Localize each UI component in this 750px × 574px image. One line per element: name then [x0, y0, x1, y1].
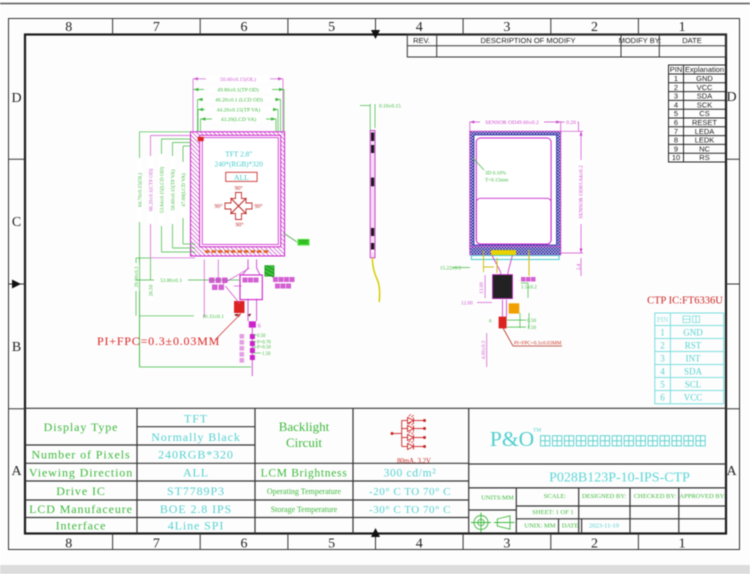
svg-text:DESCRIPTION OF MODIFY: DESCRIPTION OF MODIFY	[480, 36, 575, 45]
svg-text:4: 4	[674, 100, 678, 109]
svg-text:7: 7	[153, 20, 160, 35]
svg-text:P028B123P-10-IPS-CTP: P028B123P-10-IPS-CTP	[549, 471, 690, 486]
svg-text:PI+FPC=0.3±0.03MM: PI+FPC=0.3±0.03MM	[97, 334, 220, 348]
svg-text:5: 5	[674, 109, 678, 118]
svg-text:INT: INT	[686, 354, 701, 364]
svg-text:6: 6	[489, 319, 492, 325]
svg-text:Drive IC: Drive IC	[56, 484, 106, 498]
svg-text:8: 8	[65, 537, 72, 552]
svg-text:DATE: DATE	[682, 36, 701, 45]
svg-text:REV.: REV.	[413, 36, 430, 45]
svg-text:2: 2	[660, 341, 665, 351]
svg-text:3D 0.10%: 3D 0.10%	[485, 171, 507, 177]
svg-text:5: 5	[660, 380, 665, 390]
svg-text:MODIFY BY:: MODIFY BY:	[619, 36, 662, 45]
svg-text:64.70±0.15(OL): 64.70±0.15(OL)	[136, 173, 143, 207]
svg-text:Circuit: Circuit	[286, 435, 322, 450]
svg-text:PI+FPC=0.3±0.03MM: PI+FPC=0.3±0.03MM	[514, 340, 562, 346]
svg-text:LCM Brightness: LCM Brightness	[261, 468, 348, 480]
svg-text:GND: GND	[696, 74, 713, 83]
svg-text:SCALE:: SCALE:	[544, 493, 567, 500]
svg-text:43.20(LCD VA): 43.20(LCD VA)	[221, 116, 257, 123]
svg-text:4: 4	[416, 20, 423, 35]
svg-text:VCC: VCC	[684, 393, 703, 403]
svg-text:PIN: PIN	[657, 316, 668, 324]
svg-text:APPROVED BY:: APPROVED BY:	[679, 493, 725, 500]
svg-text:49.80±0.1(TP OD): 49.80±0.1(TP OD)	[217, 87, 259, 94]
svg-text:Backlight: Backlight	[279, 419, 330, 434]
svg-text:2.4: 2.4	[577, 263, 582, 270]
svg-text:44.20±0.15(TP VA): 44.20±0.15(TP VA)	[217, 107, 261, 114]
svg-text:4: 4	[416, 537, 423, 552]
svg-text:GND: GND	[683, 328, 703, 338]
svg-text:80mA, 3.2V: 80mA, 3.2V	[397, 458, 431, 465]
svg-text:A: A	[726, 464, 737, 479]
svg-text:D: D	[726, 90, 736, 105]
svg-text:ALL: ALL	[183, 466, 209, 480]
svg-text:6: 6	[660, 393, 665, 403]
svg-text:Interface: Interface	[56, 519, 107, 533]
svg-text:PIN: PIN	[670, 65, 683, 74]
svg-text:4: 4	[660, 367, 665, 377]
svg-text:DESIGNED BY:: DESIGNED BY:	[582, 493, 627, 500]
svg-text:4.00±0.3: 4.00±0.3	[481, 340, 487, 359]
svg-text:TFT 2.8": TFT 2.8"	[225, 150, 252, 159]
svg-text:8: 8	[65, 20, 72, 35]
svg-text:CS: CS	[699, 109, 709, 118]
svg-text:47.60(LCD VA): 47.60(LCD VA)	[180, 173, 187, 207]
svg-text:LEDK: LEDK	[695, 136, 715, 145]
svg-text:2: 2	[674, 83, 678, 92]
svg-text:RST: RST	[685, 341, 702, 351]
svg-text:P=0.50: P=0.50	[257, 346, 271, 351]
svg-text:240RGB*320: 240RGB*320	[158, 448, 234, 462]
svg-text:68.20±0.1(CTP OD): 68.20±0.1(CTP OD)	[147, 168, 154, 211]
svg-text:0.50: 0.50	[257, 334, 266, 339]
svg-text:58.60±0.15(TP VA): 58.60±0.15(TP VA)	[169, 169, 176, 210]
svg-text:1: 1	[660, 328, 665, 338]
svg-text:1: 1	[679, 537, 686, 552]
svg-text:A: A	[11, 464, 22, 479]
svg-text:UNIX: MM: UNIX: MM	[524, 523, 555, 530]
svg-text:ALL: ALL	[234, 173, 249, 182]
svg-text:9: 9	[674, 144, 678, 153]
svg-text:4Line SPI: 4Line SPI	[168, 519, 224, 533]
svg-text:90°: 90°	[214, 203, 223, 210]
svg-text:5: 5	[328, 537, 335, 552]
svg-text:12.00: 12.00	[461, 301, 473, 307]
svg-text:28.00±0.3: 28.00±0.3	[134, 266, 140, 287]
svg-text:Operating Temperature: Operating Temperature	[267, 487, 342, 496]
svg-text:3: 3	[503, 20, 510, 35]
svg-text:SDA: SDA	[697, 92, 712, 101]
svg-text:LEDA: LEDA	[695, 127, 715, 136]
svg-text:5: 5	[328, 20, 335, 35]
svg-text:26.50: 26.50	[148, 284, 154, 296]
svg-text:8: 8	[674, 136, 678, 145]
svg-text:-20° C TO 70° C: -20° C TO 70° C	[369, 486, 451, 498]
svg-text:2: 2	[591, 20, 598, 35]
svg-text:13.00: 13.00	[479, 282, 485, 294]
svg-text:3: 3	[503, 537, 510, 552]
svg-text:2: 2	[591, 537, 598, 552]
svg-text:SENSOR OD65.64±0.2: SENSOR OD65.64±0.2	[579, 165, 585, 219]
svg-text:TFT: TFT	[184, 412, 208, 426]
svg-text:6: 6	[241, 537, 248, 552]
svg-text:UNITS:MM: UNITS:MM	[481, 495, 514, 502]
svg-text:Viewing Direction: Viewing Direction	[29, 466, 133, 480]
svg-text:-30° C TO 70° C: -30° C TO 70° C	[369, 504, 451, 516]
svg-text:RS: RS	[699, 153, 709, 162]
svg-text:0.20: 0.20	[566, 120, 576, 126]
svg-text:53.84±0.15(LCD OD): 53.84±0.15(LCD OD)	[158, 167, 165, 213]
svg-text:90°: 90°	[235, 222, 244, 229]
svg-text:T=0.15mm: T=0.15mm	[485, 178, 508, 184]
svg-text:SCK: SCK	[697, 100, 712, 109]
svg-text:P&O: P&O	[490, 427, 534, 451]
svg-text:CHECKED BY:: CHECKED BY:	[634, 493, 677, 500]
svg-text:0.10±0.15: 0.10±0.15	[379, 104, 401, 110]
svg-text:SCL: SCL	[685, 380, 702, 390]
svg-text:7: 7	[153, 537, 160, 552]
svg-text:Display Type: Display Type	[44, 420, 119, 434]
svg-text:3: 3	[660, 354, 665, 364]
svg-text:46.20±0.1 (LCD OD): 46.20±0.1 (LCD OD)	[215, 97, 263, 104]
svg-text:90°: 90°	[235, 185, 244, 192]
svg-text:Storage Temperature: Storage Temperature	[271, 505, 338, 514]
svg-text:SENSOR OD49.60±0.2: SENSOR OD49.60±0.2	[485, 120, 539, 126]
svg-text:7: 7	[674, 127, 678, 136]
svg-text:SDA: SDA	[684, 367, 703, 377]
svg-text:RESET: RESET	[692, 118, 717, 127]
svg-text:Number of Pixels: Number of Pixels	[31, 448, 130, 462]
svg-text:Normally Black: Normally Black	[151, 430, 241, 444]
svg-text:2023-11-19: 2023-11-19	[589, 523, 619, 530]
svg-text:ST7789P3: ST7789P3	[167, 484, 225, 498]
svg-text:B: B	[12, 340, 21, 355]
svg-text:D: D	[11, 91, 21, 106]
svg-text:240*(RGB)*320: 240*(RGB)*320	[215, 161, 264, 169]
svg-text:0.50: 0.50	[527, 318, 536, 324]
svg-text:LCD Manufaceure: LCD Manufaceure	[29, 502, 133, 516]
svg-text:53.80±0.3: 53.80±0.3	[160, 278, 182, 284]
svg-text:NC: NC	[699, 144, 710, 153]
svg-text:15.22±0.5: 15.22±0.5	[440, 266, 461, 272]
svg-text:6: 6	[258, 324, 261, 330]
svg-text:1.5±0.2: 1.5±0.2	[521, 285, 537, 291]
svg-text:300 cd/m²: 300 cd/m²	[384, 468, 437, 480]
svg-text:Explanation: Explanation	[685, 65, 724, 74]
svg-text:6: 6	[241, 20, 248, 35]
svg-text:TM: TM	[533, 428, 541, 434]
svg-text:10: 10	[672, 153, 680, 162]
svg-text:BOE 2.8 IPS: BOE 2.8 IPS	[160, 502, 232, 516]
svg-text:1.50: 1.50	[262, 352, 271, 357]
svg-text:6: 6	[674, 118, 678, 127]
svg-text:C: C	[12, 215, 21, 230]
svg-text:SHEET: 1 OF 1: SHEET: 1 OF 1	[532, 509, 573, 516]
svg-text:DATE: DATE	[562, 523, 579, 530]
svg-text:1.50: 1.50	[527, 325, 536, 331]
svg-text:CTP IC:FT6336U: CTP IC:FT6336U	[647, 296, 723, 307]
svg-text:1: 1	[674, 74, 678, 83]
svg-text:1: 1	[679, 20, 686, 35]
svg-text:50.60±0.15(OL): 50.60±0.15(OL)	[220, 76, 256, 83]
svg-text:3: 3	[674, 92, 678, 101]
svg-text:VCC: VCC	[697, 83, 713, 92]
svg-text:90°: 90°	[254, 203, 263, 210]
svg-text:10.33±0.1: 10.33±0.1	[202, 314, 224, 320]
